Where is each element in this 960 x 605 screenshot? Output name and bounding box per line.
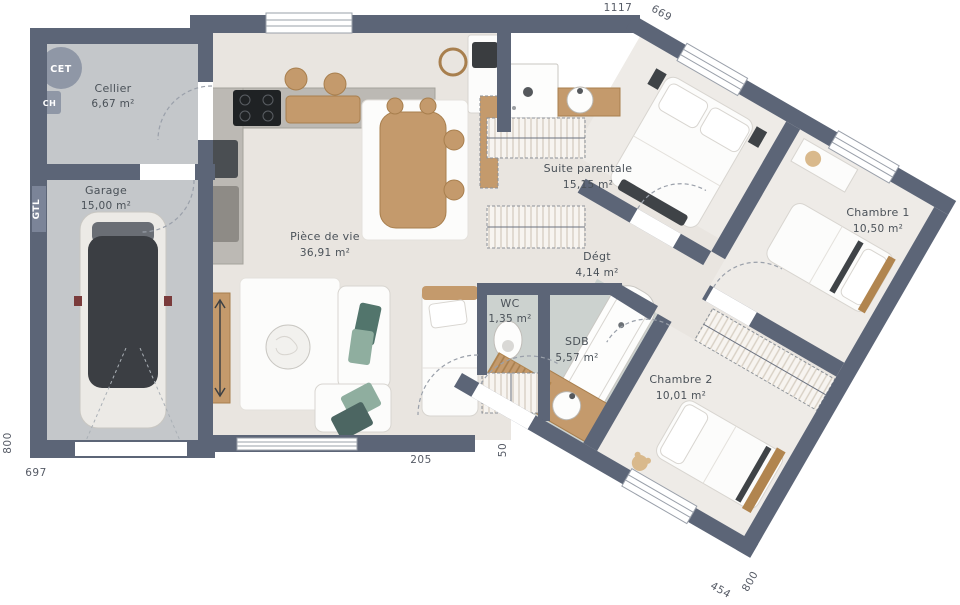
dining-chair-2 [420, 98, 436, 114]
living-area: 36,91 m² [300, 247, 350, 259]
monitor [472, 42, 498, 68]
degt-name: Dégt [583, 250, 611, 263]
dim-bottom-left: 697 [25, 467, 47, 479]
chambre1-name: Chambre 1 [846, 206, 909, 219]
car-mirror-left [74, 296, 82, 306]
dim-entry-width: 205 [410, 454, 432, 466]
dim-bottom-right-width: 454 [708, 580, 733, 601]
chambre2-name: Chambre 2 [649, 373, 712, 386]
kitchen-appliance [209, 186, 239, 242]
dim-top-right: 669 [649, 3, 674, 24]
daybed-headboard [422, 286, 478, 300]
coffee-table [266, 325, 310, 369]
dim-bottom-right-depth: 800 [740, 569, 761, 594]
door-cellier-living [198, 82, 213, 140]
daybed-pillow [429, 300, 468, 329]
wall-top [190, 15, 640, 33]
dining-table [380, 112, 446, 228]
wall-wc-right [538, 283, 550, 375]
dim-top: 1117 [604, 2, 633, 14]
window-living-top [266, 13, 352, 33]
wc-area: 1,35 m² [488, 313, 531, 325]
dining [362, 98, 468, 240]
shower-head [523, 87, 533, 97]
dim-left: 800 [2, 432, 14, 454]
ch-label: CH [43, 99, 57, 108]
cutting-board [286, 96, 360, 123]
window-living-bottom [237, 438, 357, 450]
sofa-pillow-light [348, 329, 375, 366]
chambre2-area: 10,01 m² [656, 390, 706, 402]
dining-chair-1 [387, 98, 403, 114]
wall-sdb-left [538, 373, 550, 421]
floor-plan: CET CH GTL Cellier 6,67 m² Garage 15,00 … [0, 0, 960, 605]
gtl-label: GTL [32, 199, 42, 220]
cellier-name: Cellier [94, 82, 131, 95]
garage-area: 15,00 m² [81, 200, 131, 212]
cellier-area: 6,67 m² [91, 98, 134, 110]
dining-chair-4 [444, 180, 464, 200]
wc-name: WC [500, 297, 519, 310]
door-cellier-garage [140, 164, 195, 180]
bar-stool-1 [285, 68, 307, 90]
wall-living-suite [497, 28, 511, 132]
dressing-faucet [577, 88, 583, 94]
cet-label: CET [50, 64, 71, 75]
cooktop [233, 90, 281, 126]
dining-chair-3 [444, 130, 464, 150]
sdb-area: 5,57 m² [555, 352, 598, 364]
wall-wc-left [477, 283, 487, 375]
suite-name: Suite parentale [544, 162, 633, 175]
bar-stool-2 [324, 73, 346, 95]
garage-door-opening [75, 442, 187, 456]
suite-area: 15,15 m² [563, 179, 613, 191]
chambre1-area: 10,50 m² [853, 223, 903, 235]
degt-area: 4,14 m² [575, 267, 618, 279]
daybed [422, 286, 478, 416]
car-mirror-right [164, 296, 172, 306]
sdb-name: SDB [565, 335, 589, 348]
toilet-seat [502, 340, 514, 352]
wall-cellier-top [30, 28, 200, 44]
floor-plan-canvas: CET CH GTL Cellier 6,67 m² Garage 15,00 … [0, 0, 960, 605]
shower-drain [512, 106, 516, 110]
wall-left [30, 28, 47, 458]
dim-entry-depth: 50 [497, 443, 509, 457]
wall-garage-living [198, 164, 213, 458]
living-name: Pièce de vie [290, 230, 360, 243]
garage-name: Garage [85, 184, 127, 197]
